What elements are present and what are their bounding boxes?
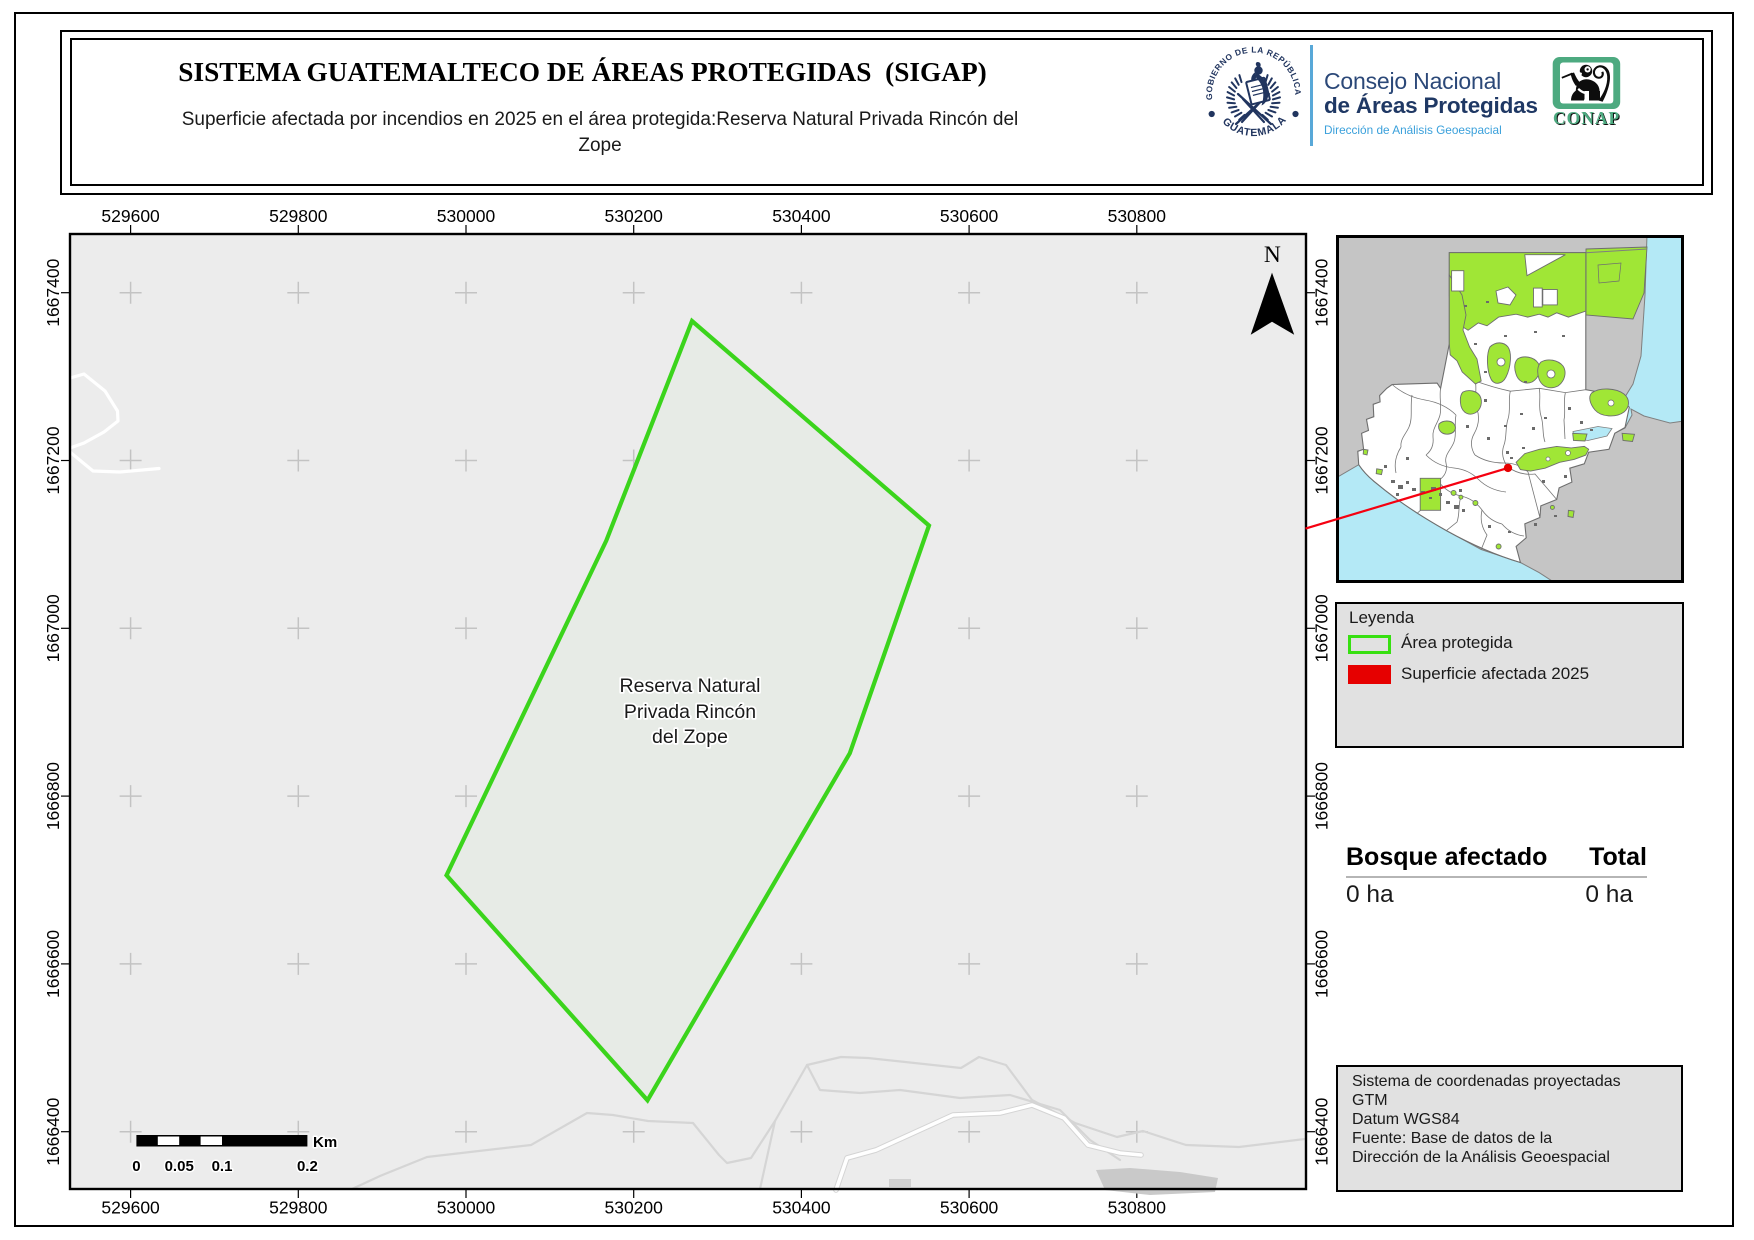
- svg-text:1666600: 1666600: [43, 930, 63, 998]
- svg-text:1667200: 1667200: [43, 426, 63, 494]
- svg-text:1667400: 1667400: [1312, 258, 1332, 326]
- svg-text:1666400: 1666400: [1312, 1097, 1332, 1165]
- svg-text:530000: 530000: [437, 1198, 496, 1218]
- svg-text:530800: 530800: [1108, 1198, 1167, 1218]
- svg-text:1667200: 1667200: [1312, 426, 1332, 494]
- svg-text:Reserva Natural: Reserva Natural: [620, 675, 761, 697]
- svg-text:0.05: 0.05: [165, 1158, 194, 1175]
- svg-text:530200: 530200: [604, 1198, 663, 1218]
- svg-text:N: N: [1264, 242, 1281, 268]
- svg-text:1667400: 1667400: [43, 258, 63, 326]
- svg-text:del Zope: del Zope: [652, 726, 728, 748]
- svg-text:0.2: 0.2: [297, 1158, 318, 1175]
- svg-text:Privada Rincón: Privada Rincón: [624, 701, 756, 723]
- svg-text:530400: 530400: [772, 206, 831, 226]
- svg-text:530000: 530000: [437, 206, 496, 226]
- svg-text:0.1: 0.1: [212, 1158, 233, 1175]
- svg-text:529600: 529600: [101, 1198, 160, 1218]
- svg-text:530400: 530400: [772, 1198, 831, 1218]
- svg-text:0: 0: [132, 1158, 140, 1175]
- svg-text:530800: 530800: [1108, 206, 1167, 226]
- svg-text:530200: 530200: [604, 206, 663, 226]
- svg-text:530600: 530600: [940, 1198, 999, 1218]
- svg-text:530600: 530600: [940, 206, 999, 226]
- svg-text:1666800: 1666800: [43, 762, 63, 830]
- svg-text:1667000: 1667000: [43, 594, 63, 662]
- svg-text:529800: 529800: [269, 1198, 328, 1218]
- svg-text:1666400: 1666400: [43, 1097, 63, 1165]
- svg-text:1666600: 1666600: [1312, 930, 1332, 998]
- svg-text:1667000: 1667000: [1312, 594, 1332, 662]
- svg-text:1666800: 1666800: [1312, 762, 1332, 830]
- svg-text:Km: Km: [313, 1134, 337, 1151]
- svg-text:529600: 529600: [101, 206, 160, 226]
- svg-text:529800: 529800: [269, 206, 328, 226]
